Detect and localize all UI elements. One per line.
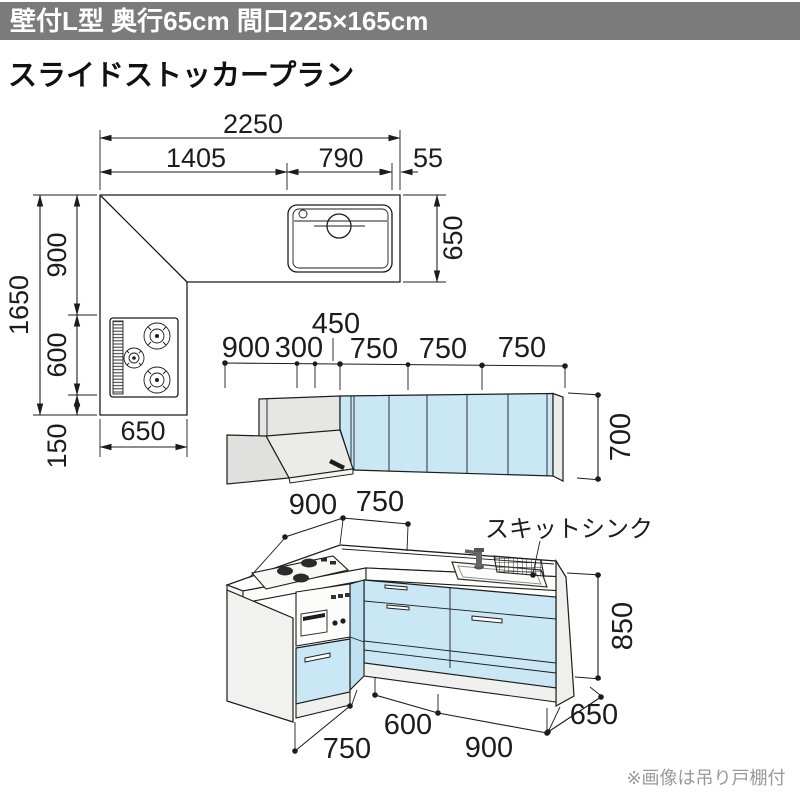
dim-plan-sink-width: 790 bbox=[318, 143, 363, 173]
dim-plan-depth-right: 650 bbox=[438, 215, 468, 260]
burner-3 bbox=[144, 367, 170, 393]
dim-persp-900-top: 900 bbox=[289, 489, 337, 521]
dim-elev-900: 900 bbox=[222, 332, 270, 364]
dim-persp-depth: 650 bbox=[570, 699, 618, 731]
dim-plan-height-end: 150 bbox=[42, 423, 72, 468]
dim-elev-750c: 750 bbox=[498, 332, 546, 364]
plan-counter-outline bbox=[100, 195, 400, 415]
wall-cabinets bbox=[340, 394, 563, 482]
dim-persp-750-left: 750 bbox=[323, 733, 371, 765]
footnote: ※画像は吊り戸棚付 bbox=[626, 768, 785, 788]
elevation-view: 900 300 450 750 750 750 700 bbox=[222, 308, 637, 484]
right-end-panel bbox=[556, 561, 574, 706]
dim-persp-height: 850 bbox=[607, 602, 639, 650]
range-hood bbox=[227, 430, 353, 484]
dim-plan-end-gap: 55 bbox=[413, 143, 443, 173]
left-end-panel bbox=[227, 590, 293, 722]
dim-plan-left-width: 1405 bbox=[166, 143, 226, 173]
dim-elev-750b: 750 bbox=[419, 333, 467, 365]
dim-elev-height: 700 bbox=[605, 413, 637, 461]
sink-callout-label: スキットシンク bbox=[485, 516, 653, 543]
dim-plan-height-total: 1650 bbox=[4, 275, 34, 335]
dim-persp-750-top: 750 bbox=[356, 486, 404, 518]
wall-cabinet-side-panel bbox=[553, 394, 563, 482]
dim-persp-900-bottom: 900 bbox=[465, 732, 513, 764]
dim-plan-bottom-width: 650 bbox=[120, 416, 165, 446]
burner-1 bbox=[144, 323, 170, 349]
dim-elev-750a: 750 bbox=[350, 333, 398, 365]
dim-persp-600: 600 bbox=[384, 709, 432, 741]
dim-plan-height-lower: 600 bbox=[42, 332, 72, 377]
dim-plan-height-upper: 900 bbox=[42, 232, 72, 277]
perspective-view: 900 750 スキットシンク 850 650 600 900 750 bbox=[227, 486, 786, 788]
base-cabinets-left bbox=[227, 584, 350, 722]
burner-2 bbox=[124, 348, 144, 368]
sink-plan bbox=[288, 205, 392, 272]
dim-plan-total-width: 2250 bbox=[223, 109, 283, 139]
base-cabinets-right bbox=[364, 580, 556, 702]
cooktop-plan bbox=[110, 318, 178, 397]
corner-cabinet-strip bbox=[350, 580, 364, 690]
kitchen-layout-diagram: 2250 1405 790 55 650 1650 900 600 150 65… bbox=[0, 0, 800, 800]
plan-corner-diagonal bbox=[101, 196, 187, 282]
